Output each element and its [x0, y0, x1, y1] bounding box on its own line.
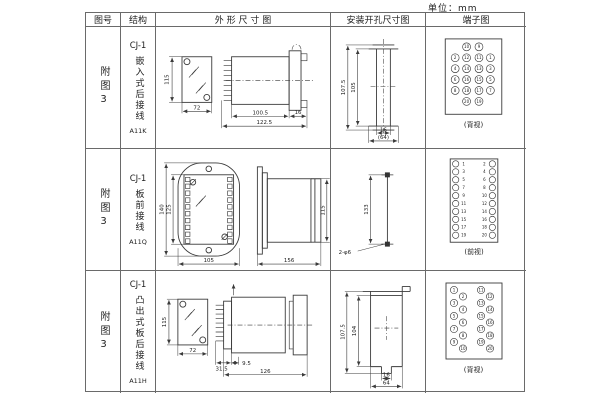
terminal-cell-row3: 13579 246810 1113151719 1214161820 (背视): [426, 271, 526, 393]
mounting-cell-row2: 133 2-φ6: [331, 149, 426, 271]
terminal-number: 19: [478, 339, 484, 344]
dim-length: 156: [284, 258, 295, 264]
terminal-column: 135791113151719: [452, 161, 466, 239]
dim-flange: 16: [295, 110, 302, 116]
terminal-number: 13: [478, 300, 484, 305]
extension-lines: [257, 179, 329, 266]
terminal-circle: [489, 232, 495, 238]
dim-inner: 105: [351, 82, 357, 92]
figure-cell-row3: 附图3: [86, 271, 121, 393]
front-view: [178, 163, 239, 256]
terminal-number: 2: [483, 161, 486, 166]
terminal-circle: [452, 208, 458, 214]
model-label: CJ-1: [130, 174, 147, 184]
terminal-number: 9: [462, 193, 465, 198]
terminal-circle: [452, 161, 458, 167]
terminal-number: 14: [464, 66, 470, 71]
front-view: [182, 57, 212, 103]
terminal-number: 13: [461, 209, 467, 214]
terminal-number: 19: [461, 233, 467, 238]
terminal-number: 4: [454, 66, 457, 71]
mount-hole: [204, 94, 210, 100]
terminal-pins: [216, 305, 224, 341]
terminal-number: 17: [461, 225, 467, 230]
mounting-cell-row1: 107.5 105 16 (64): [331, 27, 426, 149]
extension-lines: [369, 175, 385, 244]
terminal-number: 12: [464, 55, 470, 60]
mount-hole: [184, 59, 190, 65]
terminal-number: 6: [454, 77, 457, 82]
terminal-number: 5: [489, 77, 492, 82]
screw: [206, 247, 212, 253]
terminal-number: 19: [476, 99, 482, 104]
terminal-column: 1357: [486, 54, 494, 95]
terminal-number: 8: [454, 88, 457, 93]
terminal-number: 2: [454, 55, 457, 60]
terminal-number: 8: [483, 185, 486, 190]
figure-label: 附图3: [98, 311, 108, 354]
view-label: (背视): [464, 365, 484, 374]
header-mounting: 安装开孔尺寸图: [331, 13, 426, 27]
terminal-column: 246810: [459, 293, 466, 352]
terminal-number: 18: [482, 225, 488, 230]
terminal-number: 9: [453, 339, 456, 344]
structure-cell-row3: CJ-1 凸出式板后接线 A11H: [121, 271, 156, 393]
dim-height: 140: [160, 204, 166, 215]
cutout-outline: [369, 45, 399, 130]
panel-flange: [257, 167, 262, 254]
terminal-circle: [452, 232, 458, 238]
terminal-number: 15: [478, 313, 484, 318]
terminal-circle: [452, 216, 458, 222]
hatch-marks: [189, 67, 206, 94]
dim-inner: 125: [167, 204, 173, 214]
terminal-number: 5: [462, 177, 465, 182]
terminal-number: 14: [482, 209, 488, 214]
dim-body: 100.5: [253, 110, 269, 116]
flange-ear: [301, 100, 307, 107]
terminal-number: 1: [489, 55, 492, 60]
figure-label: 附图3: [98, 66, 108, 109]
front-view: [178, 299, 208, 345]
terminal-number: 14: [487, 307, 493, 312]
terminal-circle: [489, 216, 495, 222]
structure-desc: 凸出式板后接线: [134, 295, 143, 372]
side-view: [257, 167, 320, 254]
dim-height: 115: [165, 74, 171, 84]
view-label: (背视): [464, 120, 484, 129]
terminal-cell-row1: 2468 101214161820 91113151719 1357 (背视): [426, 27, 526, 149]
model-code: A11K: [130, 127, 147, 135]
terminal-number: 10: [464, 44, 470, 49]
terminal-number: 11: [476, 55, 482, 60]
terminal-number: 11: [478, 287, 484, 292]
dim-width: 72: [189, 348, 196, 354]
dim-width: 72: [193, 105, 200, 111]
figure-cell-row2: 附图3: [86, 149, 121, 271]
terminal-column: 2468101214161820: [482, 161, 496, 239]
terminal-circle: [452, 177, 458, 183]
terminal-number: 12: [482, 201, 488, 206]
dim-overall: (64): [378, 135, 389, 141]
view-label: (前视): [464, 247, 484, 256]
terminal-cell-row2: 135791113151719 2468101214161820 (前视): [426, 149, 526, 271]
dim-slot: 16: [380, 128, 387, 134]
terminal-column: 101214161820: [463, 43, 471, 105]
terminal-column: 91113151719: [475, 43, 483, 105]
terminal-number: 8: [462, 333, 465, 338]
terminal-number: 4: [462, 307, 465, 312]
extension-lines: [164, 163, 239, 266]
terminal-number: 13: [476, 66, 482, 71]
terminal-number: 17: [478, 326, 484, 331]
header-structure: 结构: [121, 13, 156, 27]
terminal-number: 3: [489, 66, 492, 71]
outline-drawing-row1: 115 72 100.5 16 122.5: [156, 27, 330, 148]
dim-overall: 64: [383, 380, 390, 386]
model-label: CJ-1: [130, 41, 147, 51]
flange-ear: [301, 54, 307, 61]
terminal-number: 20: [487, 346, 493, 351]
outline-cell-row1: 115 72 100.5 16 122.5: [156, 27, 331, 149]
terminal-drawing-row1: 2468 101214161820 91113151719 1357 (背视): [426, 27, 526, 148]
relay-front-outline: [184, 175, 234, 244]
terminal-number: 10: [482, 193, 488, 198]
terminal-column: 1113151719: [477, 286, 484, 345]
header-outline: 外 形 尺 寸 图: [156, 13, 331, 27]
terminal-number: 20: [464, 99, 470, 104]
mounting-plate-outline: [178, 163, 239, 256]
terminal-number: 10: [460, 346, 466, 351]
page: 单位：mm 图号 结构 外 形 尺 寸 图 安装开孔尺寸图 端子图 附图3 CJ…: [0, 0, 600, 400]
dim-d1: 31.5: [216, 366, 228, 372]
structure-desc: 嵌入式后接线: [134, 56, 143, 122]
flange-step: [262, 173, 267, 248]
terminal-strip-right: [228, 177, 232, 243]
terminal-number: 3: [453, 300, 456, 305]
terminal-number: 16: [487, 320, 493, 325]
model-code: A11H: [129, 377, 147, 385]
spec-table: 图号 结构 外 形 尺 寸 图 安装开孔尺寸图 端子图 附图3 CJ-1 嵌入式…: [85, 12, 525, 392]
terminal-circle: [489, 200, 495, 206]
terminal-circle: [489, 192, 495, 198]
outline-cell-row3: 115 72 31.5 9.5 126: [156, 271, 331, 393]
mounting-cell-row3: 107.5 104 16 64: [331, 271, 426, 393]
terminal-drawing-row3: 13579 246810 1113151719 1214161820 (背视): [426, 271, 526, 393]
terminal-circle: [489, 169, 495, 175]
model-code: A11Q: [129, 238, 147, 246]
dim-height: 115: [162, 317, 168, 327]
relay-body: [267, 179, 311, 242]
model-label: CJ-1: [130, 280, 147, 290]
terminal-circle: [452, 185, 458, 191]
header-figure: 图号: [86, 13, 121, 27]
relay-front-outline: [182, 57, 212, 103]
structure-cell-row2: CJ-1 板前接线 A11Q: [121, 149, 156, 271]
terminal-number: 3: [462, 169, 465, 174]
dim-outer: 107.5: [341, 80, 347, 96]
dim-total: 122.5: [257, 120, 273, 126]
structure-desc: 板前接线: [134, 189, 143, 233]
terminal-column: 1214161820: [486, 293, 493, 352]
header-terminal: 端子图: [426, 13, 526, 27]
outline-cell-row2: 140 125 105 156 115: [156, 149, 331, 271]
hatch-marks: [190, 179, 228, 240]
hole-spec: 2-φ6: [339, 250, 352, 256]
extension-lines: [345, 291, 382, 373]
center-lines: [375, 316, 399, 340]
terminal-circle: [489, 177, 495, 183]
terminal-circle: [452, 192, 458, 198]
outline-drawing-row2: 140 125 105 156 115: [156, 149, 330, 270]
dim-outer: 107.5: [340, 324, 346, 340]
dim-total: 126: [260, 369, 271, 375]
screw: [206, 166, 212, 172]
terminal-number: 2: [462, 294, 465, 299]
terminal-number: 16: [464, 77, 470, 82]
center-lines: [371, 39, 397, 136]
terminal-column: 13579: [450, 286, 457, 345]
seal-loop: [292, 45, 301, 50]
terminal-circle: [489, 208, 495, 214]
outline-drawing-row3: 115 72 31.5 9.5 126: [156, 271, 330, 393]
terminal-number: 15: [461, 217, 467, 222]
terminal-number: 16: [482, 217, 488, 222]
terminal-circle: [489, 224, 495, 230]
leader-line: [358, 244, 385, 251]
terminal-number: 15: [476, 77, 482, 82]
mount-hole: [385, 242, 390, 247]
terminal-number: 6: [483, 177, 486, 182]
mount-hole: [200, 337, 206, 343]
hatch-marks: [185, 309, 202, 336]
terminal-number: 11: [461, 201, 467, 206]
dim-span: 133: [364, 204, 370, 215]
side-view: [224, 45, 313, 111]
terminal-number: 7: [462, 185, 465, 190]
terminal-drawing-row2: 135791113151719 2468101214161820 (前视): [426, 149, 526, 270]
terminal-number: 6: [462, 320, 465, 325]
mounting-drawing-row3: 107.5 104 16 64: [331, 271, 425, 393]
structure-cell-row1: CJ-1 嵌入式后接线 A11K: [121, 27, 156, 149]
terminal-number: 12: [487, 294, 493, 299]
terminal-circle: [489, 185, 495, 191]
terminal-number: 1: [453, 287, 456, 292]
terminal-number: 5: [453, 313, 456, 318]
dim-d2: 9.5: [242, 361, 251, 367]
dim-slot: 16: [383, 373, 390, 379]
extension-lines: [346, 45, 373, 130]
terminal-strip-left: [185, 177, 189, 243]
terminal-number: 1: [462, 161, 465, 166]
figure-label: 附图3: [98, 188, 108, 231]
terminal-number: 18: [487, 333, 493, 338]
terminal-circle: [452, 224, 458, 230]
terminal-circle: [489, 161, 495, 167]
terminal-circle: [452, 169, 458, 175]
dim-inner: 104: [352, 325, 358, 336]
terminal-number: 7: [453, 326, 456, 331]
dim-side-height: 115: [320, 205, 326, 215]
terminal-number: 17: [476, 88, 482, 93]
dim-width: 105: [204, 258, 214, 264]
terminal-number: 4: [483, 169, 486, 174]
extension-lines: [167, 299, 208, 356]
terminal-number: 18: [464, 88, 470, 93]
mounting-drawing-row1: 107.5 105 16 (64): [331, 27, 425, 148]
terminal-column: 2468: [451, 54, 459, 95]
terminal-circle: [452, 200, 458, 206]
mount-hole: [180, 301, 186, 307]
terminal-number: 7: [489, 88, 492, 93]
terminal-number: 9: [478, 44, 481, 49]
side-view: [216, 284, 313, 355]
relay-front-outline: [178, 299, 208, 345]
mount-hole: [385, 172, 390, 177]
extension-lines: [169, 57, 212, 114]
terminal-number: 20: [482, 233, 488, 238]
mounting-drawing-row2: 133 2-φ6: [331, 149, 425, 270]
figure-cell-row1: 附图3: [86, 27, 121, 149]
